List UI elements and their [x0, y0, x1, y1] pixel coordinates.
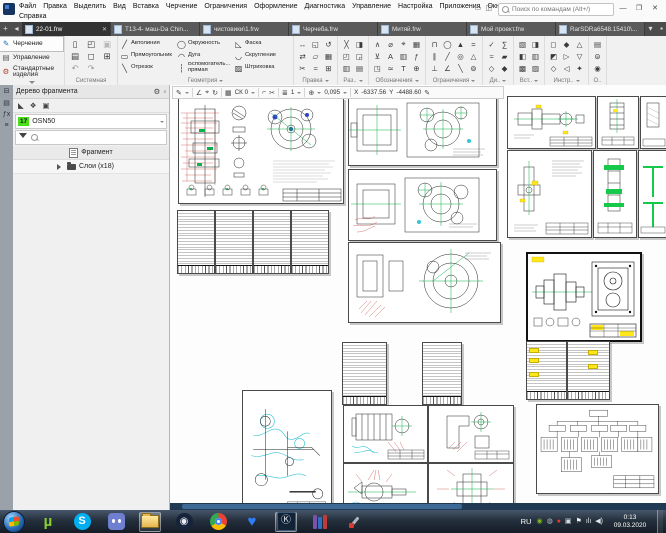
- scrollbar-thumb[interactable]: [182, 504, 462, 509]
- layers-icon[interactable]: ≣: [282, 89, 288, 97]
- spec-table-sheet-4[interactable]: [291, 210, 329, 274]
- search-input[interactable]: [512, 6, 610, 13]
- clock-date: 09.03.2020: [608, 522, 652, 530]
- grid-icon[interactable]: ▦: [225, 89, 232, 97]
- detail-sheet-plate-1[interactable]: [597, 96, 639, 149]
- steam-icon: ◉: [176, 513, 193, 530]
- search-icon: [31, 134, 38, 141]
- mode-label: Черчение: [13, 41, 43, 48]
- search-icon: [502, 6, 509, 13]
- half-icon[interactable]: ◨: [356, 40, 363, 49]
- group-dropdown-icon[interactable]: [534, 80, 538, 84]
- tab-rarsdra[interactable]: RarSDRa6548.15410\...: [556, 22, 645, 36]
- group-caption: О..: [593, 78, 601, 84]
- kompas-icon: Ⓚ: [277, 512, 296, 531]
- tool-a-icon[interactable]: ◻: [550, 40, 556, 49]
- interface-scheme-icon[interactable]: ▭: [475, 4, 482, 12]
- variables-panel-icon[interactable]: ƒx: [3, 111, 10, 118]
- standard-parts-mode-icon: ⚙: [2, 69, 10, 76]
- tree-node-label: Фрагмент: [81, 149, 112, 156]
- menu-select[interactable]: Выделить: [74, 3, 106, 10]
- group-dropdown-icon[interactable]: [502, 80, 506, 84]
- document-icon: [203, 25, 211, 34]
- coord-y-value: -4488.60: [396, 89, 421, 96]
- drawing-sheet-assembly-1[interactable]: [178, 98, 344, 204]
- tab-moy-proekt[interactable]: Мой проект.frw: [467, 22, 556, 36]
- angle-line-icon[interactable]: ╱: [445, 52, 450, 61]
- taskbar-utorrent[interactable]: µ: [37, 512, 59, 532]
- tool-utility-icon: [347, 515, 361, 529]
- taskbar-tool-utility[interactable]: [343, 512, 365, 532]
- antivirus-tray-icon[interactable]: ●: [557, 518, 561, 526]
- group-caption: Геометрия: [188, 78, 217, 84]
- undo-icon[interactable]: ↶: [71, 63, 78, 74]
- drawing-canvas[interactable]: ✎ ∠ ⌖ ↻ ▦ СК 0 ⌐ ✂ ≣ 1 ⊕ 0,095 X -6337.5…: [170, 85, 666, 510]
- equal-mark-icon[interactable]: ≃: [387, 64, 393, 73]
- sheet-graphics: [179, 99, 343, 203]
- update-tray-icon[interactable]: ◍: [547, 518, 553, 526]
- tab-label: Митяй.frw: [392, 26, 463, 33]
- autoline-tool[interactable]: ╱Автолиния: [120, 38, 177, 50]
- highlight-cell: [588, 350, 598, 355]
- chevron-down-icon[interactable]: [343, 92, 347, 96]
- group-system: ▯◰▣▤◻⊞↶↷ Системная: [65, 36, 118, 85]
- preview-pane-icon[interactable]: ▣: [43, 101, 50, 110]
- snap-target-icon[interactable]: ⌖: [205, 89, 209, 97]
- winrar-icon: [313, 514, 327, 529]
- tool-label: Штриховка: [245, 65, 274, 71]
- tool-label: Окружность: [188, 41, 220, 47]
- parameters-panel-icon[interactable]: ⊟: [4, 87, 10, 95]
- volume-tray-icon[interactable]: ◀): [595, 518, 603, 526]
- detail-sheet-bracket-2[interactable]: [428, 405, 514, 463]
- tool-label: Вспомогатель... прямая: [188, 62, 234, 74]
- circle-icon: ◯: [177, 40, 186, 49]
- menu-file[interactable]: Файл: [19, 3, 36, 10]
- chamfer-icon: ◺: [234, 40, 243, 49]
- command-search[interactable]: [498, 3, 614, 16]
- active-layer-value[interactable]: 1: [291, 89, 295, 96]
- taskbar-steam[interactable]: ◉: [173, 512, 195, 532]
- start-button[interactable]: [3, 511, 25, 533]
- panel-b-icon[interactable]: ⊜: [594, 52, 600, 61]
- tool-label: Прямоугольник: [131, 53, 172, 59]
- diameter-mark-icon[interactable]: ⌀: [388, 40, 393, 49]
- panel-c-icon[interactable]: ◉: [594, 64, 601, 73]
- rectangle-tool[interactable]: ▭Прямоугольник: [120, 50, 177, 62]
- coordinate-system-select[interactable]: СК 0: [235, 89, 248, 96]
- kinematic-scheme-sheet[interactable]: [242, 390, 332, 510]
- sheet-graphics: [508, 97, 595, 148]
- group-dropdown-icon[interactable]: [415, 80, 419, 84]
- spec-table-sheet-2[interactable]: [215, 210, 253, 274]
- group-tools: ◻◩◇◆▷◁△▽✦ Инстр..: [545, 36, 589, 85]
- document-icon: [292, 25, 300, 34]
- tab-label: Мой проект.frw: [481, 26, 552, 33]
- taskbar-winrar[interactable]: [309, 512, 331, 532]
- taskbar-heart-app[interactable]: ♥: [241, 512, 263, 532]
- tab-label: Черчеба.frw: [303, 26, 374, 33]
- chevron-down-icon: [160, 121, 164, 125]
- close-tab-icon[interactable]: ✕: [102, 26, 107, 33]
- aux-line-tool[interactable]: ┆Вспомогатель... прямая: [177, 62, 234, 74]
- main-menu: ФайлПравкаВыделитьВидВставкаЧерчениеОгра…: [19, 1, 504, 12]
- copy-icon[interactable]: ⇄: [299, 52, 305, 61]
- group-caption: Инстр..: [553, 78, 573, 84]
- split-icon[interactable]: ◰: [343, 52, 350, 61]
- group-dropdown-icon[interactable]: [219, 80, 223, 84]
- mode-tab-management[interactable]: ▤ Управление: [0, 52, 64, 66]
- gear-icon[interactable]: ⚙: [154, 87, 161, 96]
- coord-y-label: Y: [389, 89, 393, 96]
- group-constraints: ⊓∥⊥◯╱∠▲◎╲=△⊚ Ограничения: [426, 36, 483, 85]
- menu-diagnostics[interactable]: Диагностика: [305, 3, 346, 10]
- taskbar-chrome[interactable]: [207, 512, 229, 532]
- action-center-flag-icon[interactable]: ⚑: [576, 518, 582, 526]
- arc-tool[interactable]: ◠Дуга: [177, 50, 234, 62]
- network-tray-icon[interactable]: ▣: [565, 518, 572, 526]
- menu-insert[interactable]: Вставка: [133, 3, 159, 10]
- pencil-icon[interactable]: ✎: [176, 89, 182, 97]
- panel-a-icon[interactable]: ▤: [594, 40, 601, 49]
- menu-edit[interactable]: Правка: [43, 3, 67, 10]
- sheet-graphics: [349, 243, 500, 322]
- array-icon[interactable]: ▦: [325, 52, 332, 61]
- break-icon[interactable]: ╳: [344, 40, 349, 49]
- taskbar-discord[interactable]: [105, 512, 127, 532]
- highlight-cell: [529, 358, 539, 363]
- insert-view-icon[interactable]: ◧: [519, 52, 526, 61]
- group-dimensions: ╳◰▥◨◲▤ Раз..: [338, 36, 369, 85]
- document-icon: [559, 25, 567, 34]
- drawing-sheet-gear-large[interactable]: [348, 242, 501, 323]
- draw-mode-icon[interactable]: ◣: [18, 101, 24, 110]
- prev-tab-button[interactable]: ◂: [11, 22, 22, 36]
- mode-label: Стандартные изделия: [13, 66, 62, 79]
- fillet-tool[interactable]: ◡Скругление: [234, 50, 291, 62]
- titlebar-aux-icons: ▭◫: [475, 4, 492, 12]
- tab-t13-4[interactable]: T13-4- маш-Da Chin...: [111, 22, 200, 36]
- view-toolbar: ✎ ∠ ⌖ ↻ ▦ СК 0 ⌐ ✂ ≣ 1 ⊕ 0,095 X -6337.5…: [172, 86, 504, 99]
- mode-tab-standard-parts[interactable]: ⚙ Стандартные изделия: [0, 65, 64, 79]
- tangent-icon[interactable]: ◯: [443, 40, 451, 49]
- document-icon: [25, 25, 33, 34]
- roughness-icon[interactable]: ∧: [375, 40, 381, 49]
- tool-c-icon[interactable]: ◇: [551, 64, 557, 73]
- hatch-tool[interactable]: ▨Штриховка: [234, 62, 291, 74]
- quarter-icon[interactable]: ◲: [356, 52, 363, 61]
- zoom-tool-icon[interactable]: ⊕: [308, 89, 314, 97]
- help-menu: Справка: [19, 11, 46, 22]
- close-button[interactable]: ✕: [648, 2, 662, 16]
- new-document-icon[interactable]: ▯: [73, 39, 78, 50]
- group-caption: Раз..: [343, 78, 356, 84]
- symmetry-icon[interactable]: △: [471, 52, 477, 61]
- menu-help[interactable]: Справка: [19, 13, 46, 20]
- text-a-icon[interactable]: A: [388, 52, 393, 61]
- skype-icon: S: [74, 513, 91, 530]
- table-icon[interactable]: ▦: [413, 40, 420, 49]
- preview-icon[interactable]: ◻: [87, 51, 94, 62]
- sheet-graphics: [349, 170, 496, 240]
- chevron-down-icon[interactable]: [185, 92, 189, 96]
- shear-icon[interactable]: ▱: [313, 52, 319, 61]
- rotate-icon[interactable]: ↺: [325, 40, 331, 49]
- tool-label: Фаска: [245, 41, 261, 47]
- wave-icon[interactable]: ≈: [489, 52, 493, 61]
- group-edit: ↔⇄✂◱▱≈↺▦⊞ Правка: [294, 36, 338, 85]
- assembly-sheet-highlighted[interactable]: [526, 252, 642, 342]
- check-icon[interactable]: ✓: [488, 40, 494, 49]
- center-mark-icon[interactable]: ⌖: [401, 39, 405, 49]
- management-mode-icon: ▤: [2, 55, 10, 62]
- expand-arrow-icon[interactable]: [57, 164, 64, 170]
- solid-diamond-icon[interactable]: ◆: [502, 64, 508, 73]
- formula-icon[interactable]: ƒ: [414, 52, 418, 61]
- sheet-graphics: [349, 97, 496, 165]
- windows-flag-icon: [9, 516, 19, 526]
- sheet-graphics: [243, 391, 331, 510]
- group-dropdown-icon[interactable]: [359, 80, 363, 84]
- detail-sheet-column-1[interactable]: [593, 150, 637, 238]
- highlight-cell: [529, 348, 539, 353]
- spec-table-sheet-1[interactable]: [177, 210, 215, 274]
- ribbon: ✎ Черчение ▤ Управление ⚙ Стандартные из…: [0, 36, 666, 86]
- tool-h-icon[interactable]: ▽: [577, 52, 583, 61]
- perpendicular-icon[interactable]: ⊥: [431, 64, 438, 73]
- section-icon[interactable]: ▥: [343, 64, 350, 73]
- tool-e-icon[interactable]: ▷: [564, 52, 570, 61]
- language-indicator[interactable]: RU: [521, 517, 532, 526]
- tool-b-icon[interactable]: ◩: [550, 52, 557, 61]
- detail-sheet-bracket-1[interactable]: [507, 150, 592, 238]
- pin-tabs-button[interactable]: ▪: [656, 22, 666, 36]
- folder-icon: [67, 164, 76, 170]
- side-panel-bar: ⊟▤ƒx≡: [0, 85, 13, 510]
- minimize-button[interactable]: —: [616, 2, 630, 16]
- chevron-down-icon[interactable]: [317, 92, 321, 96]
- tool-label: Скругление: [245, 53, 276, 59]
- tree-node-layers[interactable]: Слои (x18): [13, 160, 169, 174]
- detail-sheet-green-t[interactable]: [638, 150, 666, 238]
- equal-icon[interactable]: =: [471, 40, 475, 49]
- tab-mityay[interactable]: Митяй.frw: [378, 22, 467, 36]
- diamond-icon[interactable]: ◇: [489, 64, 495, 73]
- mirror-icon[interactable]: ◱: [312, 40, 319, 49]
- group-caption: Правка: [302, 78, 322, 84]
- layer-number-badge: 17: [18, 117, 29, 126]
- group-dropdown-icon[interactable]: [325, 80, 329, 84]
- rectangle-icon: ▭: [120, 52, 129, 61]
- tree-panel-header: Дерево фрагмента ⚙ ▫: [13, 85, 169, 99]
- mark-table-icon[interactable]: ▥: [400, 52, 407, 61]
- scissors-icon[interactable]: ✂: [269, 89, 275, 97]
- segment-icon: ╲: [120, 64, 129, 73]
- sheet-graphics: [344, 406, 427, 462]
- base-icon[interactable]: ⊕: [413, 64, 419, 73]
- spec-table-sheet-6[interactable]: [422, 342, 462, 405]
- insert-object-icon[interactable]: ◨: [532, 40, 539, 49]
- insert-picture-icon[interactable]: ▩: [519, 64, 526, 73]
- menu-settings[interactable]: Настройка: [398, 3, 432, 10]
- taskbar-explorer[interactable]: [139, 512, 161, 532]
- tool-d-icon[interactable]: ◆: [564, 40, 570, 49]
- windows-taskbar: µ S ◉ ♥ Ⓚ RU ◉◍●▣⚑ılı◀) 0:13 09.03.2020: [0, 510, 666, 533]
- coord-x-label: X: [354, 89, 358, 96]
- deform-icon[interactable]: ≈: [313, 64, 317, 73]
- zoom-value[interactable]: 0,095: [324, 89, 340, 96]
- tab-22-01[interactable]: 22-01.frw ✕: [22, 22, 111, 36]
- mode-label: Управление: [13, 55, 50, 62]
- horizontal-scrollbar[interactable]: [170, 503, 666, 510]
- concentric-icon[interactable]: ◎: [457, 52, 464, 61]
- scale-icon[interactable]: ⊞: [325, 64, 331, 73]
- chevron-down-icon[interactable]: [297, 92, 301, 96]
- tray-icons: ◉◍●▣⚑ılı◀): [536, 518, 603, 526]
- tree-node-label: Слои (x18): [79, 163, 114, 170]
- open-document-icon[interactable]: ◰: [87, 39, 95, 50]
- tool-i-icon[interactable]: ✦: [576, 64, 582, 73]
- spec-table-sheet-3[interactable]: [253, 210, 291, 274]
- chevron-down-icon[interactable]: [251, 92, 255, 96]
- save-all-icon[interactable]: ⊞: [103, 51, 110, 62]
- snap-angle-icon[interactable]: ∠: [196, 89, 202, 97]
- strip-icon[interactable]: ▤: [356, 64, 363, 73]
- tree-node-fragment[interactable]: Фрагмент: [13, 146, 169, 160]
- detail-sheet-motor[interactable]: [343, 405, 428, 463]
- segment-tool[interactable]: ╲Отрезок: [120, 62, 177, 74]
- clock-time: 0:13: [608, 514, 652, 522]
- angle-icon[interactable]: ∠: [444, 64, 451, 73]
- group-dropdown-icon[interactable]: [576, 80, 580, 84]
- heart-icon: ♥: [248, 513, 257, 531]
- menu-styling[interactable]: Оформление: [254, 3, 297, 10]
- tree-filter-row[interactable]: [15, 130, 167, 145]
- highlight-cell: [529, 372, 539, 377]
- spec-table-sheet-5[interactable]: [342, 342, 387, 405]
- insert-fragment-icon[interactable]: ▧: [519, 40, 526, 49]
- menu-bar: ФайлПравкаВыделитьВидВставкаЧерчениеОгра…: [0, 0, 666, 23]
- chrome-icon: [210, 513, 227, 530]
- refresh-icon[interactable]: ↻: [212, 89, 218, 97]
- group-designations: ∧⊻◳⌀A≃⌖▥T▦ƒ⊕ Обозначения: [369, 36, 426, 85]
- mode-tabs: ✎ Черчение ▤ Управление ⚙ Стандартные из…: [0, 36, 65, 85]
- show-desktop-button[interactable]: [657, 510, 663, 533]
- edit-pencil-icon[interactable]: ✎: [424, 89, 430, 97]
- screens-icon[interactable]: ◫: [485, 4, 492, 12]
- taskbar-clock[interactable]: 0:13 09.03.2020: [608, 514, 652, 530]
- tree-panel-title: Дерево фрагмента: [16, 88, 151, 95]
- tab-label: 22-01.frw: [36, 26, 99, 33]
- restore-button[interactable]: ❐: [632, 2, 646, 16]
- slope-icon[interactable]: ╲: [458, 64, 463, 73]
- insert-hatch-icon[interactable]: ▨: [532, 64, 539, 73]
- filter-funnel-icon[interactable]: [19, 133, 27, 142]
- leader-icon[interactable]: ◳: [374, 64, 381, 73]
- group-caption: Обозначения: [375, 78, 412, 84]
- group-dropdown-icon[interactable]: [471, 80, 475, 84]
- tool-g-icon[interactable]: △: [577, 40, 583, 49]
- tab-chercheba[interactable]: Черчеба.frw: [289, 22, 378, 36]
- circle-tool[interactable]: ◯Окружность: [177, 38, 234, 50]
- sheet-graphics: [641, 97, 666, 148]
- taskbar-kompas[interactable]: Ⓚ: [275, 512, 297, 532]
- chamfer-tool[interactable]: ◺Фаска: [234, 38, 291, 50]
- fix-icon[interactable]: ▲: [457, 40, 464, 49]
- mode-tab-drawing[interactable]: ✎ Черчение: [0, 36, 64, 52]
- signal-tray-icon[interactable]: ılı: [586, 518, 591, 526]
- parallel-icon[interactable]: ∥: [433, 52, 437, 61]
- folder-icon: [141, 515, 159, 528]
- save-icon[interactable]: ▣: [103, 39, 111, 50]
- tab-chistoviki[interactable]: чистовики\1.frw: [200, 22, 289, 36]
- trim-icon[interactable]: ✂: [299, 64, 305, 73]
- hatch-icon: ▨: [234, 64, 243, 73]
- print-icon[interactable]: ▤: [71, 51, 79, 62]
- nvidia-tray-icon[interactable]: ◉: [536, 518, 542, 526]
- tool-f-icon[interactable]: ◁: [564, 64, 570, 73]
- move-icon[interactable]: ↔: [299, 40, 307, 49]
- datum-icon[interactable]: ⊻: [375, 52, 381, 61]
- current-layer-select[interactable]: 17 OSN50: [15, 114, 167, 129]
- sum-icon[interactable]: ∑: [502, 40, 507, 49]
- dock-panel-icon[interactable]: ▫: [163, 87, 166, 96]
- group-caption: Вст..: [520, 78, 532, 84]
- coincident-icon[interactable]: ⊓: [432, 40, 438, 49]
- fragment-tree-panel: Дерево фрагмента ⚙ ▫ ◣❖▣ 17 OSN50 Фрагме…: [13, 85, 170, 510]
- document-icon: [470, 25, 478, 34]
- menu-view[interactable]: Вид: [113, 3, 126, 10]
- drawing-sheet-gearbox-1[interactable]: [348, 96, 497, 166]
- spec-table-highlighted-1[interactable]: [526, 341, 567, 400]
- main-area: ⊟▤ƒx≡ Дерево фрагмента ⚙ ▫ ◣❖▣ 17 OSN50 …: [0, 85, 666, 510]
- redo-icon[interactable]: ↷: [87, 63, 94, 74]
- menu-constraints[interactable]: Ограничения: [204, 3, 247, 10]
- menu-panel-icon[interactable]: ≡: [4, 122, 8, 129]
- group-other: ▤⊜◉ О..: [589, 36, 607, 85]
- align-icon[interactable]: ⊚: [470, 64, 476, 73]
- corner-icon[interactable]: ⌐: [262, 89, 266, 96]
- group-caption: Системная: [76, 78, 107, 84]
- tool-label: Дуга: [188, 53, 200, 59]
- detail-sheet-shaft-1[interactable]: [507, 96, 596, 149]
- tab-label: RarSDRa6548.15410\...: [570, 26, 641, 33]
- tab-list-button[interactable]: ▾: [645, 22, 656, 36]
- structure-diagram-sheet[interactable]: [536, 404, 659, 494]
- fragment-ic: [69, 148, 78, 158]
- list-panel-icon[interactable]: ▤: [3, 99, 10, 107]
- taskbar-skype[interactable]: S: [71, 512, 93, 532]
- sheet-graphics: [598, 97, 638, 148]
- app-logo-icon: [3, 3, 15, 15]
- sheet-graphics: [429, 406, 513, 462]
- bar-icon[interactable]: ▰: [502, 52, 508, 61]
- insert-table-icon[interactable]: ▥: [532, 52, 539, 61]
- sheet-graphics: [528, 254, 640, 340]
- drawing-sheet-gearbox-2[interactable]: [348, 169, 497, 241]
- layers-view-icon[interactable]: ❖: [30, 101, 37, 110]
- group-geometry: ╱Автолиния▭Прямоугольник╲Отрезок◯Окружно…: [118, 36, 294, 85]
- menu-draw[interactable]: Черчение: [166, 3, 198, 10]
- new-tab-button[interactable]: +: [0, 22, 11, 36]
- text-icon[interactable]: T: [401, 64, 406, 73]
- arc-icon: ◠: [177, 52, 186, 61]
- drawing-mode-icon: ✎: [2, 41, 10, 48]
- spec-table-highlighted-2[interactable]: [567, 341, 610, 400]
- menu-manage[interactable]: Управление: [352, 3, 391, 10]
- document-icon: [381, 25, 389, 34]
- detail-sheet-narrow-1[interactable]: [640, 96, 666, 149]
